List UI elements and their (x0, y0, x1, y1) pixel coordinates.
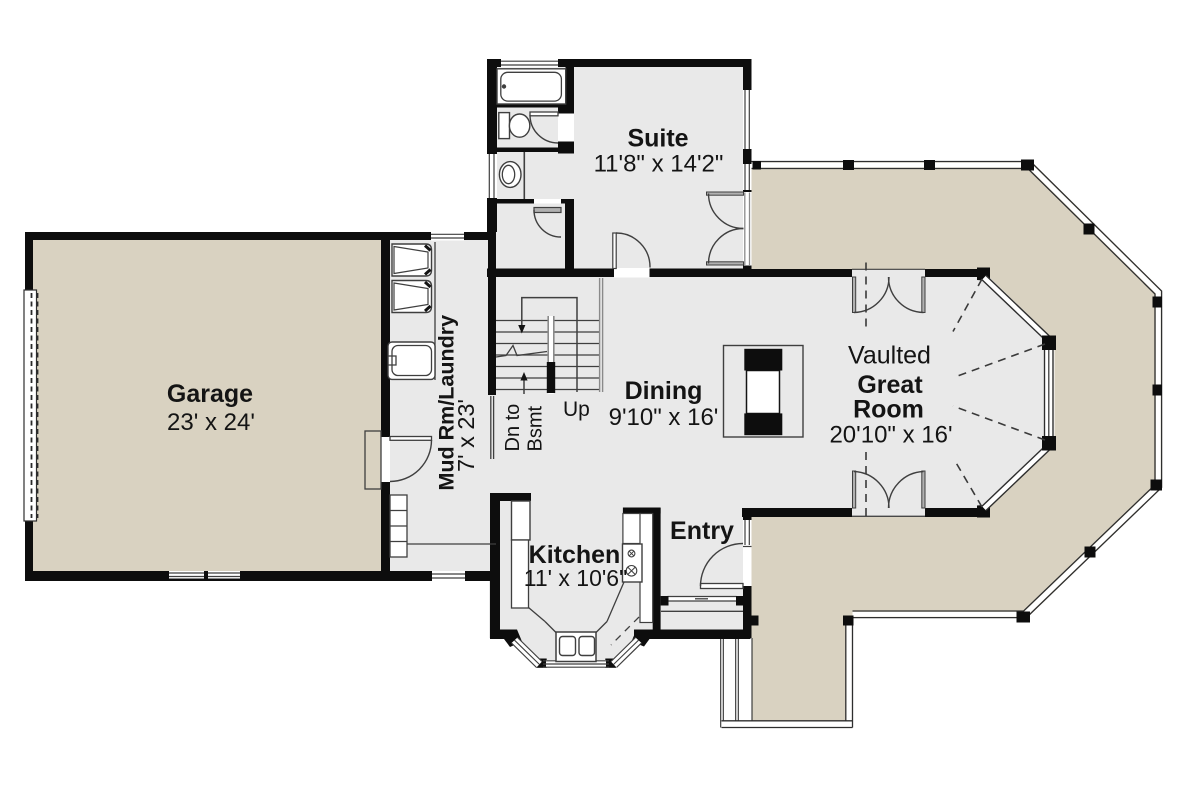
svg-text:11' x 10'6": 11' x 10'6" (524, 565, 627, 591)
svg-text:Room: Room (853, 396, 924, 424)
svg-text:Up: Up (563, 398, 590, 421)
svg-text:Garage: Garage (167, 380, 253, 408)
svg-text:11'8" x 14'2": 11'8" x 14'2" (594, 151, 724, 178)
svg-text:9'10" x 16': 9'10" x 16' (609, 404, 719, 431)
svg-text:Dn to: Dn to (502, 404, 524, 452)
svg-text:7' x 23': 7' x 23' (453, 399, 479, 472)
svg-text:20'10" x 16': 20'10" x 16' (829, 422, 952, 449)
svg-text:Vaulted: Vaulted (848, 342, 931, 370)
svg-text:Bsmt: Bsmt (525, 406, 547, 452)
svg-text:23' x 24': 23' x 24' (167, 409, 255, 436)
svg-text:Entry: Entry (670, 517, 734, 545)
svg-text:Dining: Dining (625, 377, 703, 405)
svg-text:Suite: Suite (627, 125, 688, 153)
